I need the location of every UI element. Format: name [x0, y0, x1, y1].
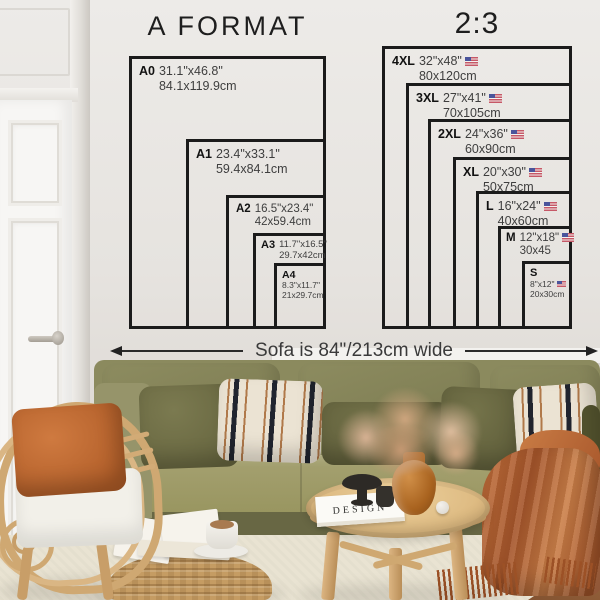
- size-code: M: [506, 232, 516, 259]
- size-cm: 29.7x42cm: [279, 250, 327, 261]
- size-inches: 32"x48": [419, 54, 462, 68]
- arrow-right-icon: [586, 346, 598, 356]
- size-cm: 80x120cm: [419, 69, 478, 84]
- size-inches: 8"x12": [530, 279, 554, 289]
- size-cm: 42x59.4cm: [255, 216, 314, 229]
- arrow-left-icon: [110, 346, 122, 356]
- size-inches: 27"x41": [443, 91, 486, 105]
- coffee-surface: [210, 520, 234, 529]
- us-flag-icon: [511, 130, 524, 139]
- size-code: 3XL: [416, 91, 439, 120]
- striped-pillow: [217, 378, 324, 464]
- rust-pillow: [11, 402, 127, 497]
- size-guide-scene: A FORMAT 2:3 A0 31.1"x46.8"84.1x119.9cm …: [0, 0, 600, 600]
- size-inches: 16.5"x23.4": [255, 203, 314, 216]
- size-code: A0: [139, 64, 155, 93]
- size-cm: 70x105cm: [443, 106, 502, 121]
- size-inches: 16"x24": [498, 199, 541, 213]
- size-rect-s: S 8"x12"20x30cm: [522, 261, 572, 329]
- size-cm: 21x29.7cm: [282, 291, 321, 301]
- door-handle-rosette: [52, 331, 64, 345]
- size-rect-a4: A4 8.3"x11.7"21x29.7cm: [274, 263, 326, 329]
- size-inches: 11.7"x16.5": [279, 239, 327, 250]
- size-inches: 23.4"x33.1": [216, 147, 288, 162]
- arrow-line: [465, 350, 586, 352]
- us-flag-icon: [562, 233, 574, 241]
- size-cm: 84.1x119.9cm: [159, 79, 237, 94]
- size-code: XL: [463, 165, 479, 194]
- size-inches: 20"x30": [483, 165, 526, 179]
- us-flag-icon: [557, 281, 566, 287]
- flower-blob: [430, 432, 482, 474]
- size-cm: 30x45: [520, 245, 575, 258]
- ratio-2-3-title: 2:3: [382, 7, 572, 41]
- size-code: 4XL: [392, 54, 415, 83]
- wall-molding: [0, 8, 70, 76]
- a-format-title: A FORMAT: [129, 11, 326, 42]
- dried-flowers: [336, 388, 488, 476]
- us-flag-icon: [529, 168, 542, 177]
- size-cm: 59.4x84.1cm: [216, 162, 288, 177]
- decor-ball: [436, 501, 449, 514]
- size-code: A3: [261, 239, 275, 261]
- door-panel-top: [8, 120, 62, 206]
- size-cm: 20x30cm: [530, 290, 567, 300]
- sofa-width-label: Sofa is 84"/213cm wide: [255, 340, 453, 362]
- size-inches: 31.1"x46.8": [159, 64, 237, 79]
- seat-seam: [300, 457, 302, 513]
- us-flag-icon: [489, 94, 502, 103]
- size-inches: 24"x36": [465, 127, 508, 141]
- size-code: L: [486, 199, 494, 228]
- size-code: A2: [236, 203, 251, 230]
- size-code: A1: [196, 147, 212, 176]
- size-cm: 60x90cm: [465, 142, 524, 157]
- black-bowl-foot: [351, 499, 373, 506]
- us-flag-icon: [465, 57, 478, 66]
- arrow-line: [122, 350, 243, 352]
- size-inches: 12"x18": [520, 232, 560, 244]
- size-code: 2XL: [438, 127, 461, 156]
- us-flag-icon: [544, 202, 557, 211]
